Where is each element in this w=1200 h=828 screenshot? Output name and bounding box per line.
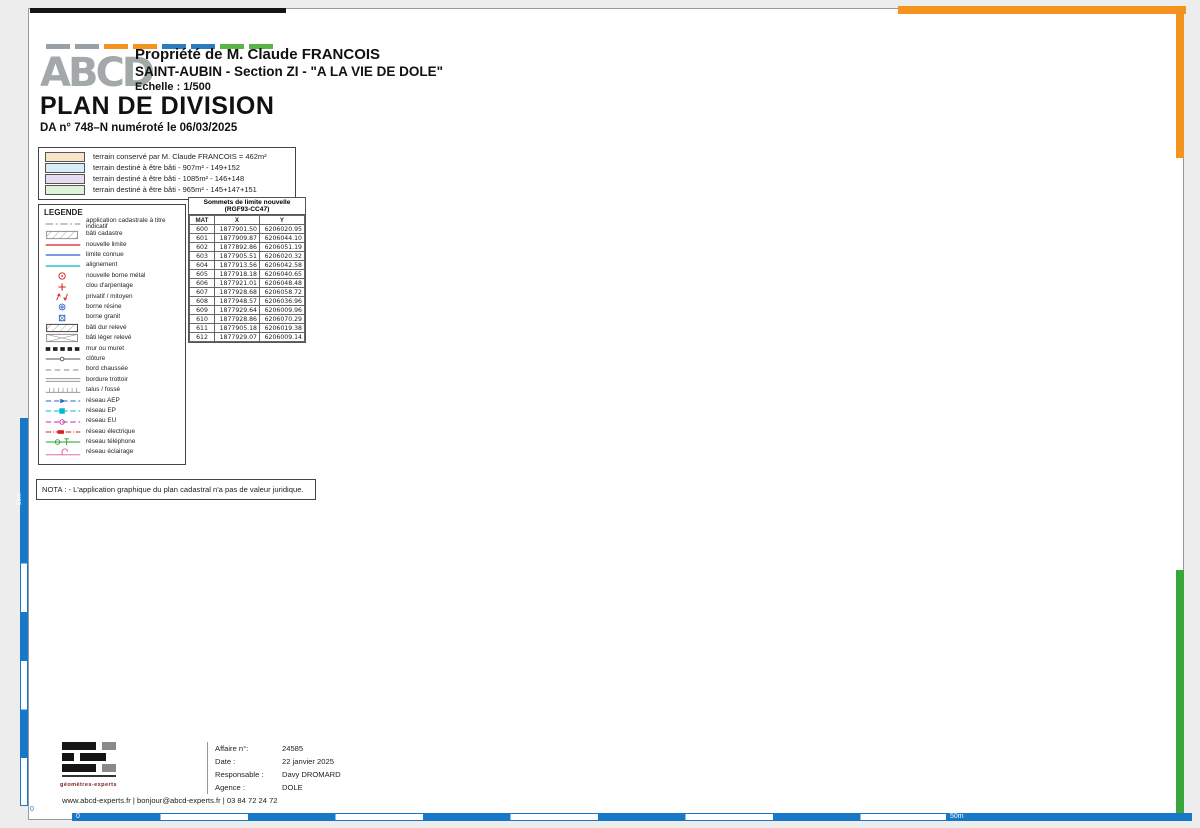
legend-item: nouvelle limite bbox=[44, 240, 183, 250]
legend-item: réseau électrique bbox=[44, 427, 183, 437]
legend-item: privatif / mitoyen bbox=[44, 292, 183, 302]
legend-item: clou d'arpentage bbox=[44, 281, 183, 291]
vertex-row: 6071877928.686206058.72 bbox=[190, 288, 305, 297]
legend-item: mur ou muret bbox=[44, 344, 183, 354]
agence-value: DOLE bbox=[282, 783, 303, 792]
water-network-icon bbox=[44, 396, 82, 406]
vertex-row: 6021877892.866206051.19 bbox=[190, 243, 305, 252]
page-title: PLAN DE DIVISION bbox=[40, 92, 274, 121]
survey-nail-icon bbox=[44, 282, 82, 292]
terrain-legend-row: terrain destiné à être bâti - 1085m² - 1… bbox=[45, 173, 295, 184]
alignment-icon bbox=[44, 261, 82, 271]
scale-50m-label: 50m bbox=[950, 813, 964, 820]
wall-icon bbox=[44, 344, 82, 354]
dashdot-line-icon bbox=[44, 219, 82, 229]
vertex-row: 6111877905.186206019.38 bbox=[190, 324, 305, 333]
metal-marker-icon bbox=[44, 271, 82, 281]
legend-title: LEGENDE bbox=[44, 208, 183, 217]
date-value: 22 janvier 2025 bbox=[282, 757, 334, 766]
responsable-label: Responsable : bbox=[215, 770, 264, 779]
legend-item: bâti cadastre bbox=[44, 229, 183, 239]
legend-item: limite connue bbox=[44, 250, 183, 260]
legend-item: réseau éclairage bbox=[44, 448, 183, 458]
swatch-green bbox=[45, 185, 85, 195]
cadastre-building-icon bbox=[44, 230, 82, 240]
doc-reference: DA n° 748–N numéroté le 06/03/2025 bbox=[40, 122, 237, 134]
affaire-value: 24585 bbox=[282, 744, 303, 753]
ge-logo-icon bbox=[62, 742, 120, 780]
contact-line: www.abcd-experts.fr | bonjour@abcd-exper… bbox=[62, 796, 278, 805]
legend-item: bâti dur relevé bbox=[44, 323, 183, 333]
road-edge-icon bbox=[44, 365, 82, 375]
legend-item: nouvelle borne métal bbox=[44, 271, 183, 281]
terrain-legend-row: terrain destiné à être bâti - 965m² - 14… bbox=[45, 184, 295, 195]
legend-item: talus / fossé bbox=[44, 385, 183, 395]
curb-icon bbox=[44, 375, 82, 385]
legend-item: réseau AEP bbox=[44, 396, 183, 406]
nota-box: NOTA : - L'application graphique du plan… bbox=[36, 479, 316, 500]
frame-corner-bottomright bbox=[1176, 570, 1184, 816]
ge-logo-caption: géomètres-experts bbox=[60, 782, 117, 788]
lighting-network-icon bbox=[44, 448, 82, 458]
vertex-row: 6061877921.016206048.48 bbox=[190, 279, 305, 288]
legend-item: bord chaussée bbox=[44, 364, 183, 374]
hard-building-icon bbox=[44, 323, 82, 333]
legend-item: réseau EP bbox=[44, 406, 183, 416]
vertex-row: 6091877929.646206009.96 bbox=[190, 306, 305, 315]
vertex-table-grid: MAT X Y 6001877901.506206020.95601187790… bbox=[189, 215, 305, 342]
scale-zero-vertical-label: 0 bbox=[30, 806, 34, 813]
vertex-row: 6031877905.516206020.32 bbox=[190, 252, 305, 261]
scale-50m-vertical-label: 50m bbox=[17, 493, 23, 505]
location-title: SAINT-AUBIN - Section ZI - "A LA VIE DE … bbox=[135, 64, 443, 79]
granite-marker-icon bbox=[44, 313, 82, 323]
vertex-row: 6121877929.076206009.14 bbox=[190, 333, 305, 342]
legend-item: bâti léger relevé bbox=[44, 333, 183, 343]
vertex-table-title: Sommets de limite nouvelle (RGF93-CC47) bbox=[189, 198, 305, 215]
legend-item: réseau EU bbox=[44, 416, 183, 426]
vertex-table: Sommets de limite nouvelle (RGF93-CC47) … bbox=[188, 197, 306, 343]
swatch-blue bbox=[45, 163, 85, 173]
resin-marker-icon bbox=[44, 302, 82, 312]
legend-item: clôture bbox=[44, 354, 183, 364]
agence-label: Agence : bbox=[215, 783, 245, 792]
scale-bar-vertical bbox=[20, 514, 28, 806]
swatch-orange bbox=[45, 152, 85, 162]
frame-corner-topleft bbox=[30, 8, 286, 13]
scale-bar-horizontal bbox=[72, 813, 947, 821]
terrain-color-legend: terrain conservé par M. Claude FRANCOIS … bbox=[38, 147, 296, 200]
electric-network-icon bbox=[44, 427, 82, 437]
scale-bar-horizontal-tail bbox=[947, 813, 1192, 821]
legend-item: alignement bbox=[44, 261, 183, 271]
scale-zero-label: 0 bbox=[76, 813, 80, 820]
vertex-row: 6101877928.866206070.29 bbox=[190, 315, 305, 324]
affaire-label: Affaire n°: bbox=[215, 744, 248, 753]
frame-corner-topright-v bbox=[1176, 6, 1184, 158]
vertex-row: 6041877913.566206042.58 bbox=[190, 261, 305, 270]
vertex-row: 6081877948.576206036.96 bbox=[190, 297, 305, 306]
telephone-network-icon bbox=[44, 437, 82, 447]
responsable-value: Davy DROMARD bbox=[282, 770, 341, 779]
vertex-row: 6011877909.876206044.10 bbox=[190, 234, 305, 243]
vertex-row: 6001877901.506206020.95 bbox=[190, 225, 305, 234]
slope-ditch-icon bbox=[44, 385, 82, 395]
legend-item: borne granit bbox=[44, 313, 183, 323]
legend-item: application cadastrale à titre indicatif bbox=[44, 219, 183, 229]
terrain-legend-row: terrain destiné à être bâti - 907m² - 14… bbox=[45, 162, 295, 173]
known-limit-icon bbox=[44, 250, 82, 260]
legend-item: bordure trottoir bbox=[44, 375, 183, 385]
title-block-divider bbox=[207, 742, 208, 794]
symbol-legend: LEGENDE application cadastrale à titre i… bbox=[38, 204, 186, 465]
fence-icon bbox=[44, 354, 82, 364]
light-building-icon bbox=[44, 333, 82, 343]
private-party-arrows-icon bbox=[44, 292, 82, 302]
frame-corner-topright-h bbox=[898, 6, 1186, 14]
owner-title: Propriété de M. Claude FRANCOIS bbox=[135, 46, 380, 63]
stormwater-network-icon bbox=[44, 406, 82, 416]
sewer-network-icon bbox=[44, 417, 82, 427]
swatch-purple bbox=[45, 174, 85, 184]
new-limit-icon bbox=[44, 240, 82, 250]
legend-item: réseau téléphone bbox=[44, 437, 183, 447]
terrain-legend-row: terrain conservé par M. Claude FRANCOIS … bbox=[45, 151, 295, 162]
vertex-row: 6051877918.186206040.65 bbox=[190, 270, 305, 279]
date-label: Date : bbox=[215, 757, 235, 766]
legend-item: borne résine bbox=[44, 302, 183, 312]
